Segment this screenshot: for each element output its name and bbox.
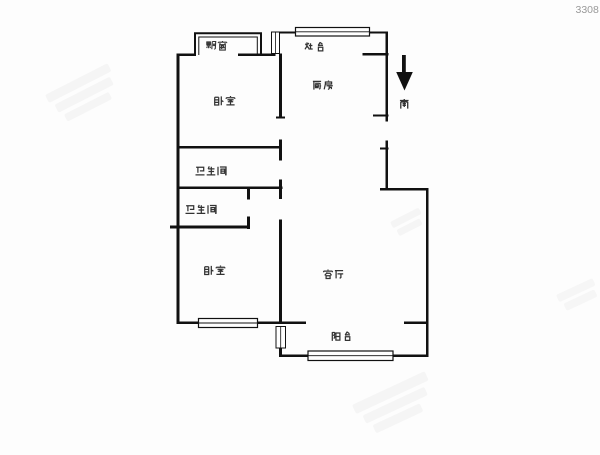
- svg-text:3308: 3308: [576, 4, 600, 16]
